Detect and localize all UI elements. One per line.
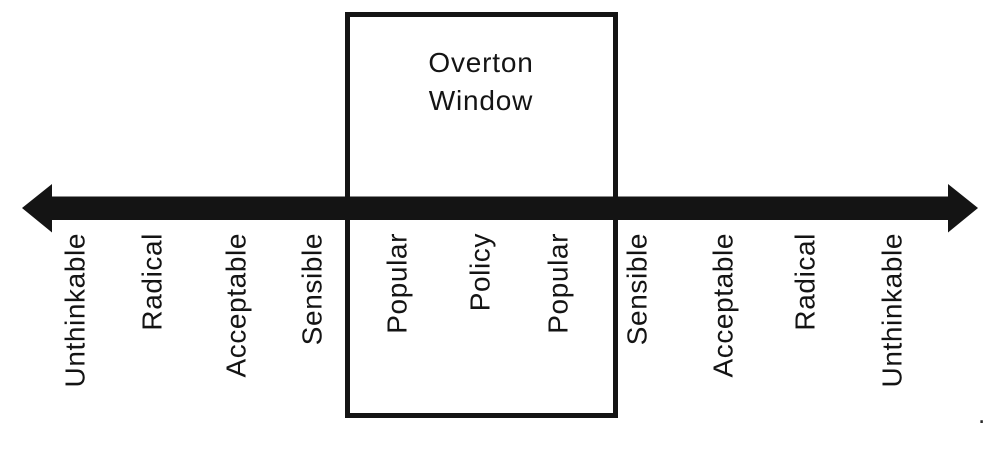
axis-label-acceptable-left: Acceptable xyxy=(221,233,252,378)
overton-window-diagram: Overton Window Unthinkable Radical Accep… xyxy=(0,0,1000,451)
axis-label-policy: Policy xyxy=(465,233,496,311)
axis-label-unthinkable-far-right: Unthinkable xyxy=(877,233,908,387)
window-title-line2: Window xyxy=(429,85,533,116)
axis-label-radical-right: Radical xyxy=(790,233,821,331)
axis-label-acceptable-right: Acceptable xyxy=(708,233,739,378)
axis-label-sensible-left: Sensible xyxy=(297,233,328,345)
axis-label-unthinkable-far-left: Unthinkable xyxy=(60,233,91,387)
axis-label-sensible-right: Sensible xyxy=(622,233,653,345)
axis-label-popular-right: Popular xyxy=(543,233,574,334)
window-title-line1: Overton xyxy=(428,47,533,78)
diagram-svg: Overton Window Unthinkable Radical Accep… xyxy=(0,0,1000,451)
axis-label-radical-left: Radical xyxy=(137,233,168,331)
stray-period-mark: . xyxy=(978,399,985,429)
axis-label-popular-left: Popular xyxy=(382,233,413,334)
